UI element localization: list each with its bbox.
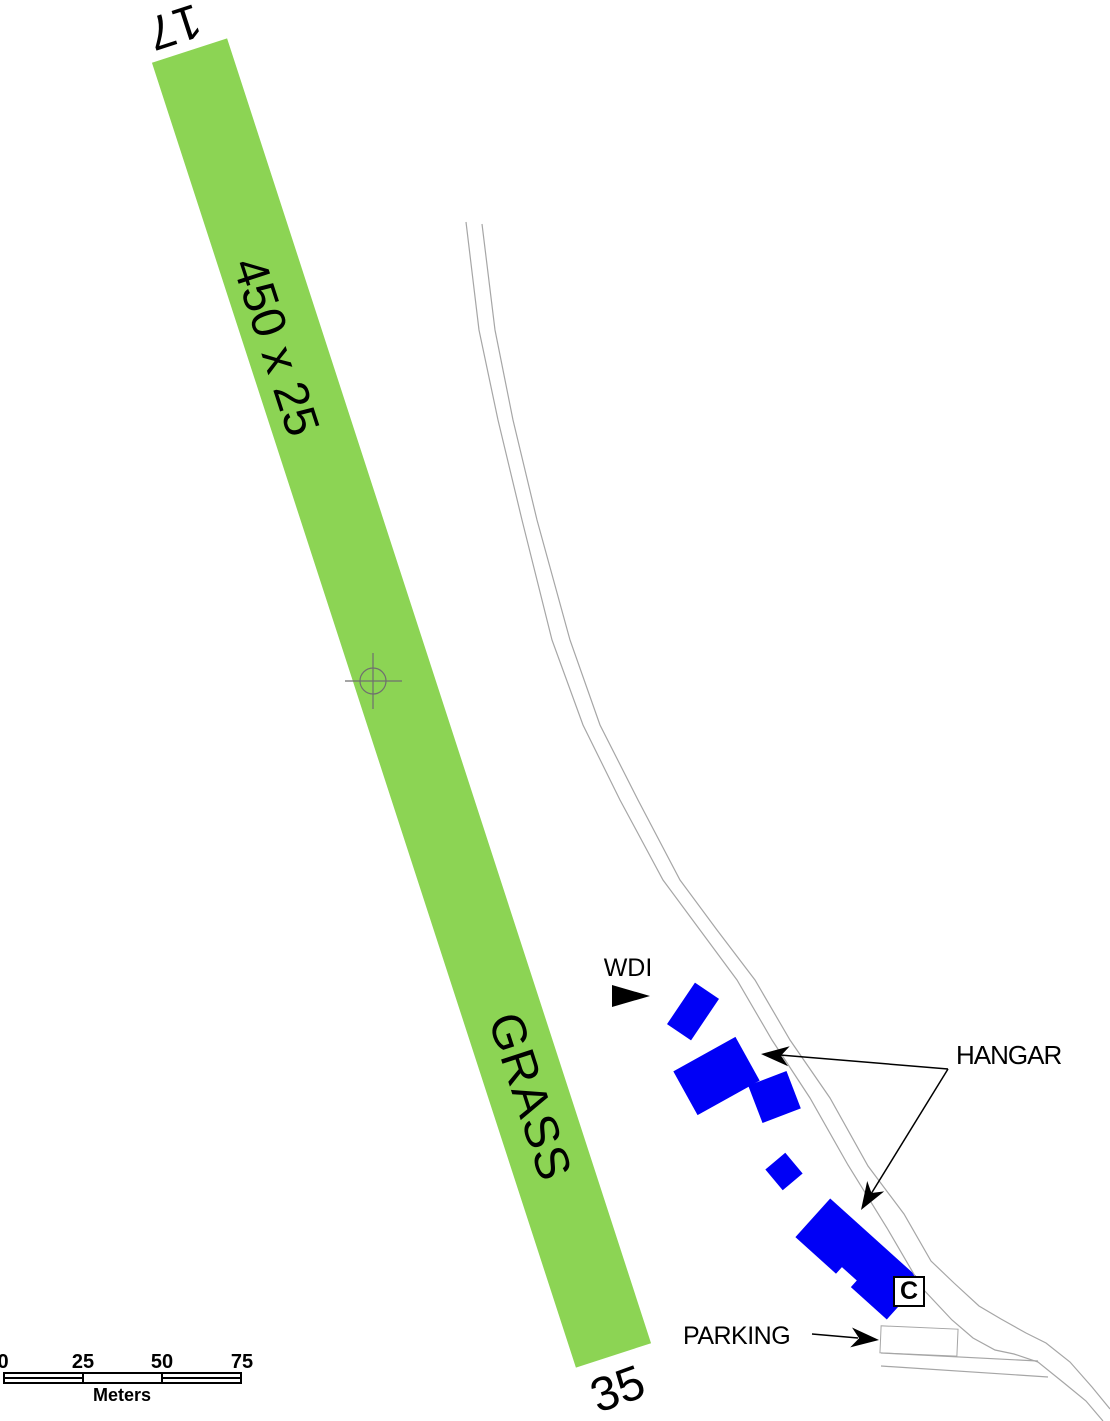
scale-tick-50: 50 xyxy=(142,1351,182,1374)
parking-label: PARKING xyxy=(683,1322,790,1351)
hangar-label: HANGAR xyxy=(956,1040,1061,1071)
hangar-arrow-icon-1 xyxy=(761,1046,790,1066)
road-east-edge xyxy=(482,224,1110,1409)
scale-tick-25: 25 xyxy=(63,1351,103,1374)
scale-segment-1 xyxy=(5,1374,84,1382)
parking-access-road-south xyxy=(881,1366,1048,1377)
overlay-graphics xyxy=(0,0,1110,1421)
scale-segment-3 xyxy=(163,1374,240,1382)
scale-units-label: Meters xyxy=(42,1385,202,1406)
c-point-badge: C xyxy=(893,1276,925,1307)
hangar-leader-line-2 xyxy=(871,1069,948,1194)
scale-bar xyxy=(3,1372,242,1384)
parking-area xyxy=(879,1325,958,1356)
scale-segment-2 xyxy=(84,1374,163,1382)
road-west-edge xyxy=(466,222,1103,1421)
scale-tick-75: 75 xyxy=(222,1351,262,1374)
parking-leader-line xyxy=(812,1334,858,1338)
scale-tick-0: 0 xyxy=(0,1351,23,1374)
wdi-label: WDI xyxy=(598,954,658,983)
aerodrome-diagram: 450 x 25 GRASS 17 35 WDI HANGAR xyxy=(0,0,1110,1421)
wdi-triangle-icon xyxy=(612,985,650,1007)
arp-crosshair-icon xyxy=(345,653,402,709)
